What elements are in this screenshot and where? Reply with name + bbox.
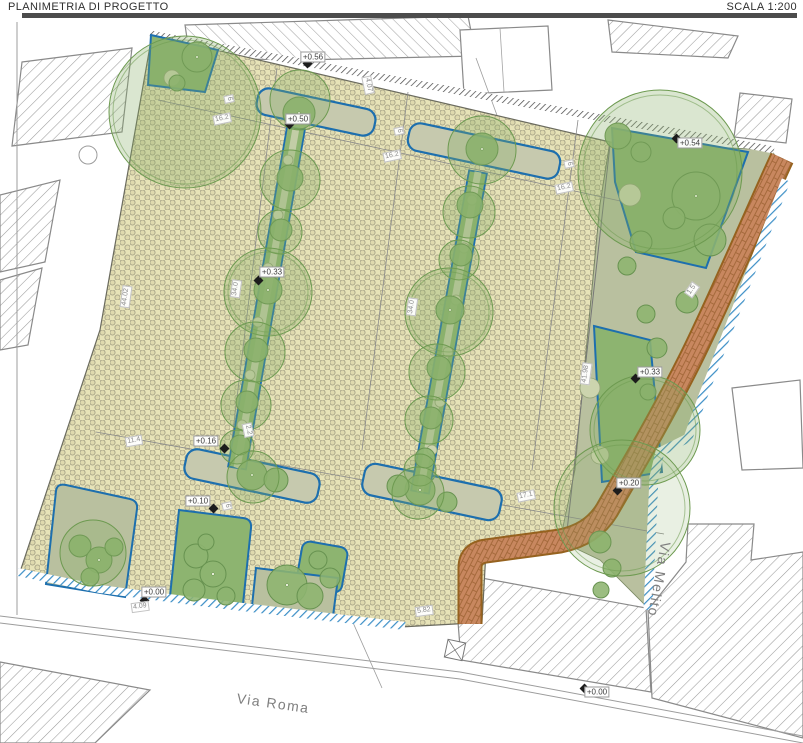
spot-elevation-label: +0.10	[185, 496, 210, 507]
spot-elevation-label: +0.33	[259, 267, 284, 278]
header-divider	[22, 13, 797, 18]
spot-elevation-label: +0.50	[285, 114, 310, 125]
page-title: PLANIMETRIA DI PROGETTO	[8, 1, 169, 13]
spot-elevation-label: +0.20	[616, 478, 641, 489]
spot-elevation-label: +0.56	[300, 52, 325, 63]
site-plan-drawing	[0, 0, 803, 743]
spot-elevation-label: +0.33	[637, 367, 662, 378]
bed-bottom-left-2	[170, 510, 251, 604]
scale-label: SCALA 1:200	[727, 1, 797, 13]
spot-elevation-label: +0.54	[677, 138, 702, 149]
crosswalk-mark	[444, 639, 465, 660]
spot-elevation-label: +0.16	[193, 436, 218, 447]
spot-elevation-label: +0.00	[584, 687, 609, 698]
spot-elevation-label: +0.00	[141, 587, 166, 598]
plan-sheet: PLANIMETRIA DI PROGETTO SCALA 1:200 Via …	[0, 0, 803, 743]
